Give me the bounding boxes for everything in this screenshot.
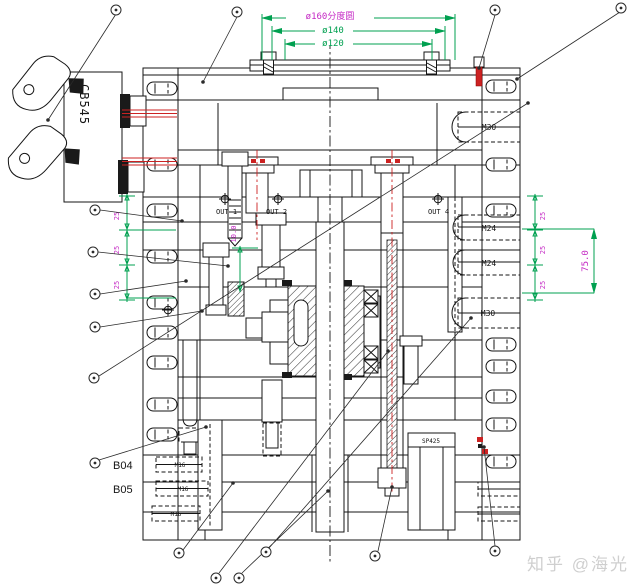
out4-label: OUT 4 bbox=[428, 208, 449, 216]
balloon-callout bbox=[88, 247, 98, 257]
b04-label: B04 bbox=[113, 460, 133, 472]
balloon-callout bbox=[111, 5, 121, 15]
out2-label: OUT 2 bbox=[266, 208, 287, 216]
watermark: 知乎 @海光 bbox=[527, 555, 629, 574]
dim-step-l3: 25 bbox=[113, 281, 121, 289]
bearing-square bbox=[364, 290, 378, 303]
balloon-callout bbox=[174, 548, 184, 558]
balloon-callout bbox=[90, 322, 100, 332]
thread-label-m16-row3: M16 bbox=[171, 511, 182, 518]
dim-step-1: 25 bbox=[539, 212, 547, 220]
dimension-right-stack: 25 25 25 75.0 bbox=[522, 194, 594, 302]
spring-label: SP425 bbox=[422, 438, 440, 445]
dim-total-75: 75.0 bbox=[581, 250, 591, 272]
balloon-callout bbox=[89, 373, 99, 383]
dim-dia140: ø140 bbox=[322, 26, 344, 36]
dim-step-2: 25 bbox=[539, 246, 547, 254]
dim-step-3: 25 bbox=[539, 281, 547, 289]
balloon-callout bbox=[90, 458, 100, 468]
flange-bolt-left bbox=[261, 52, 276, 74]
thread-label-m16-row2: M16 bbox=[178, 486, 189, 493]
balloon-callout bbox=[490, 546, 500, 556]
mold-assembly-drawing: SP425 M30 M24 M24 M30 bbox=[0, 0, 639, 586]
balloon-callout bbox=[261, 547, 271, 557]
dim-dia120: ø120 bbox=[322, 39, 344, 49]
thread-label-m24-lower: M24 bbox=[482, 259, 497, 268]
balloon-callout bbox=[211, 573, 221, 583]
balloon-callout bbox=[370, 551, 380, 561]
bearing-square bbox=[364, 346, 378, 359]
dim-pitch-circle: ø160分度圆 bbox=[306, 10, 355, 22]
thread-label-m24-upper: M24 bbox=[482, 224, 497, 233]
balloon-callout bbox=[490, 5, 500, 15]
balloon-callout bbox=[616, 3, 626, 13]
bearing-square bbox=[364, 304, 378, 317]
locating-ring-flange bbox=[250, 52, 450, 74]
balloon-callout bbox=[90, 289, 100, 299]
thread-label-m16-row1: M16 bbox=[175, 462, 186, 469]
balloon-callout bbox=[232, 7, 242, 17]
balloon-callout bbox=[90, 205, 100, 215]
highlight-red-pin-a bbox=[477, 437, 483, 442]
drawing-canvas: SP425 M30 M24 M24 M30 bbox=[0, 0, 639, 586]
balloon-callout bbox=[234, 573, 244, 583]
dim-step-l2: 25 bbox=[113, 246, 121, 254]
out1-label: OUT 1 bbox=[216, 208, 237, 216]
thread-label-m30-mid: M30 bbox=[481, 309, 496, 318]
dim-depth-10: 10.0 bbox=[230, 226, 238, 243]
b05-label: B05 bbox=[113, 484, 133, 496]
